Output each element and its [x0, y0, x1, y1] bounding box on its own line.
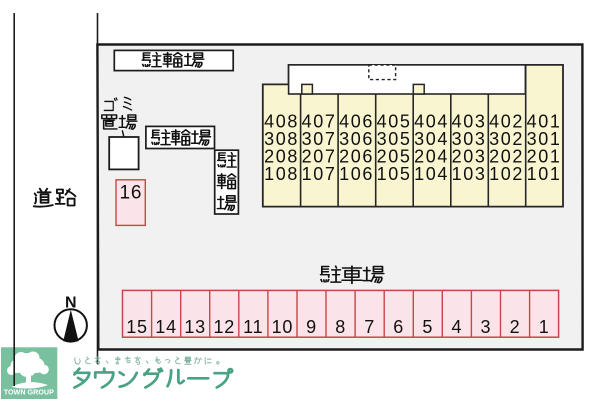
svg-text:3: 3 [480, 317, 491, 337]
svg-text:12: 12 [213, 317, 235, 337]
svg-text:101: 101 [527, 164, 562, 184]
svg-text:9: 9 [306, 317, 317, 337]
svg-text:8: 8 [335, 317, 346, 337]
svg-text:107: 107 [302, 164, 337, 184]
svg-text:104: 104 [414, 164, 449, 184]
svg-text:16: 16 [120, 182, 143, 203]
svg-text:TOWN GROUP: TOWN GROUP [4, 387, 54, 396]
svg-text:5: 5 [422, 317, 433, 337]
svg-text:2: 2 [510, 317, 521, 337]
svg-text:105: 105 [377, 164, 412, 184]
svg-text:7: 7 [364, 317, 375, 337]
svg-text:13: 13 [184, 317, 206, 337]
svg-text:103: 103 [452, 164, 487, 184]
svg-text:106: 106 [339, 164, 374, 184]
svg-text:6: 6 [393, 317, 404, 337]
svg-text:14: 14 [155, 317, 177, 337]
svg-text:15: 15 [126, 317, 148, 337]
svg-text:11: 11 [243, 317, 263, 337]
svg-text:102: 102 [489, 164, 524, 184]
svg-text:108: 108 [264, 164, 299, 184]
svg-text:4: 4 [451, 317, 462, 337]
svg-text:1: 1 [539, 317, 550, 337]
svg-text:10: 10 [272, 317, 294, 337]
